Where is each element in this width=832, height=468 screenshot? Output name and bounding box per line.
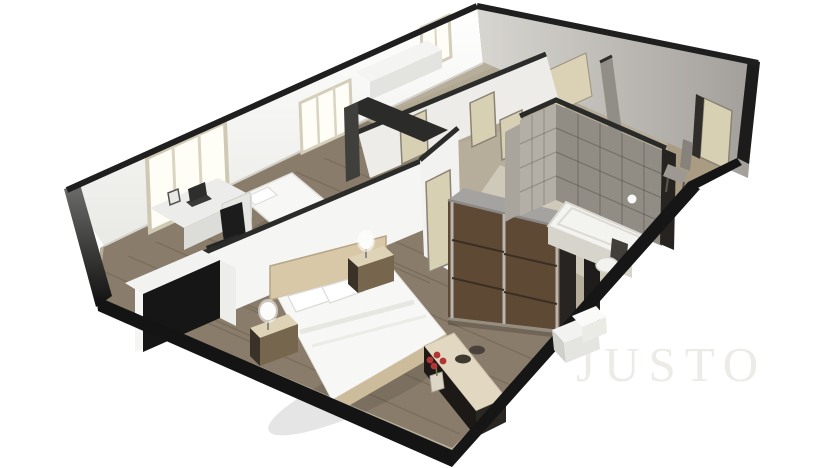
soap-dish xyxy=(628,195,637,204)
floor-plan-render xyxy=(0,0,832,468)
bowl xyxy=(469,346,485,355)
entry-door xyxy=(700,98,732,170)
floor-plan-screenshot: JUSTO xyxy=(0,0,832,468)
wall-end-jamb xyxy=(344,102,360,182)
bowl xyxy=(455,355,471,364)
